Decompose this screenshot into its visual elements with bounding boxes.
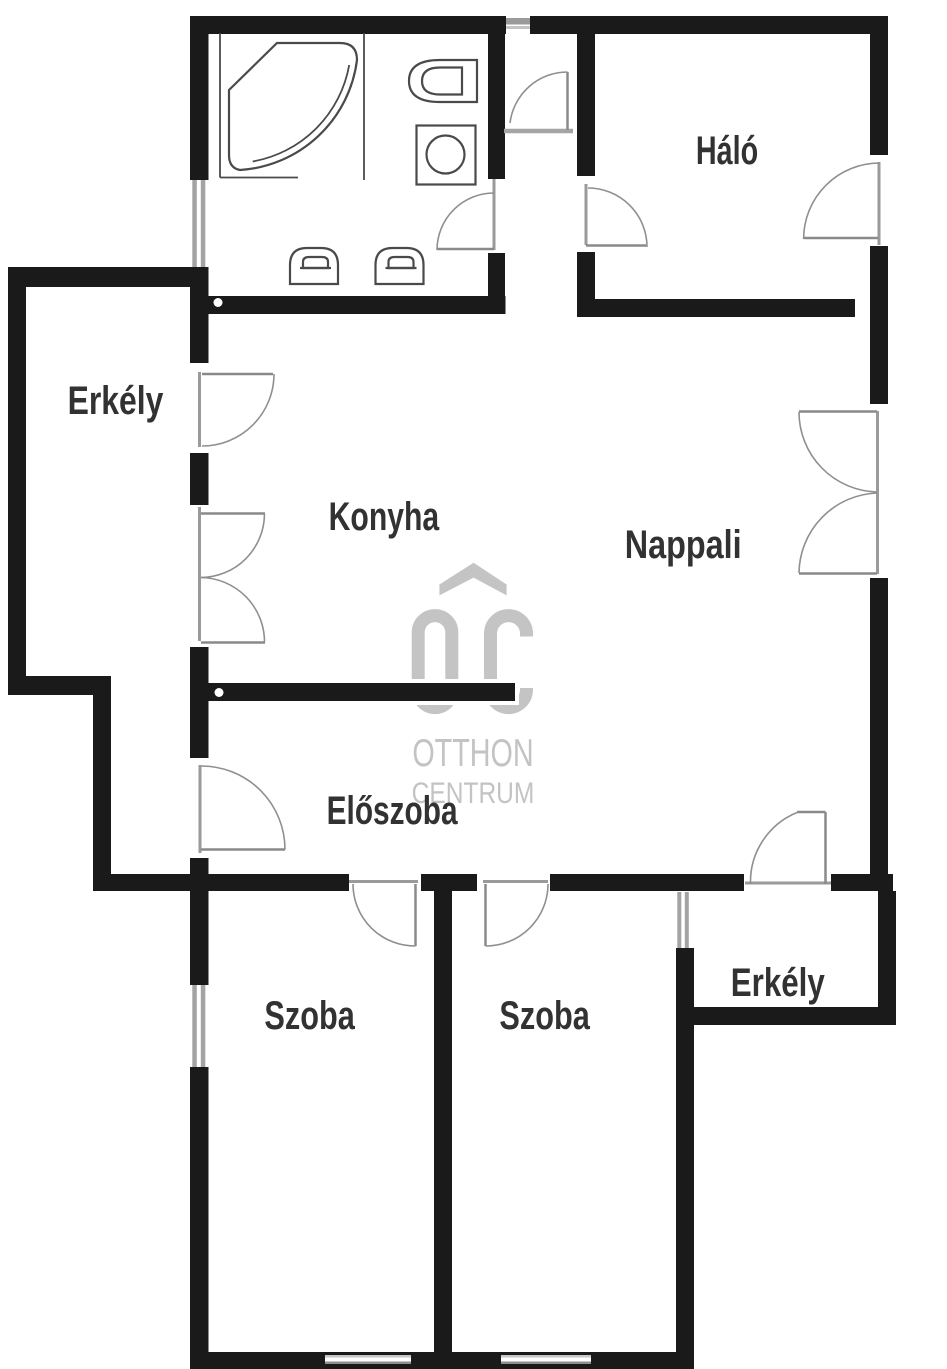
svg-text:Szoba: Szoba bbox=[264, 993, 355, 1038]
svg-text:Konyha: Konyha bbox=[329, 494, 440, 539]
svg-text:Előszoba: Előszoba bbox=[327, 789, 458, 833]
svg-text:OTTHON: OTTHON bbox=[412, 732, 533, 775]
svg-text:Erkély: Erkély bbox=[731, 959, 825, 1005]
svg-text:Háló: Háló bbox=[696, 128, 758, 173]
svg-text:Szoba: Szoba bbox=[499, 993, 590, 1038]
svg-text:Erkély: Erkély bbox=[68, 378, 164, 423]
svg-text:Nappali: Nappali bbox=[625, 522, 742, 567]
